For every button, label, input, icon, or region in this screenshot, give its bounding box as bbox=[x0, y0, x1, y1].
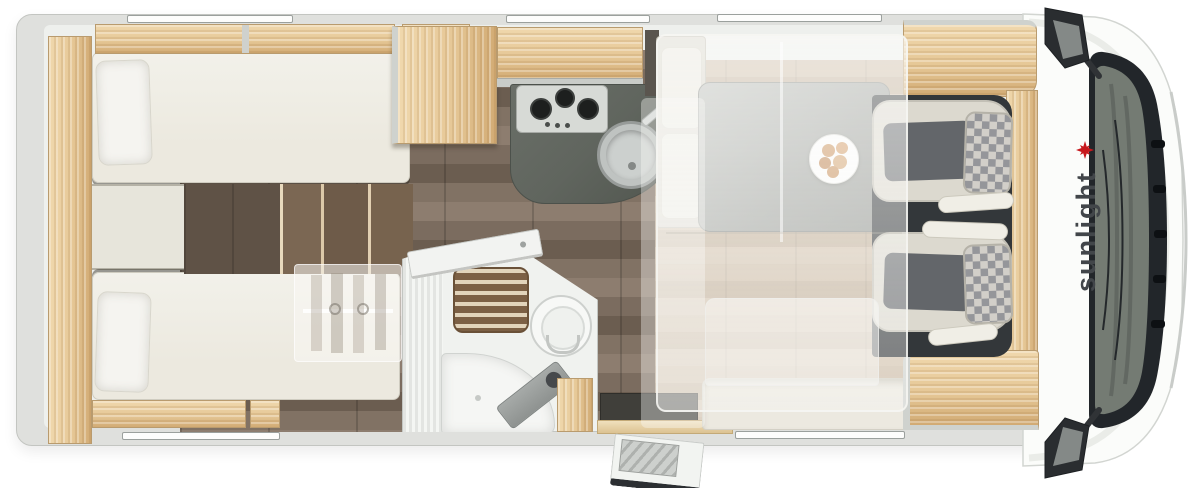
front-grille-slot bbox=[1153, 185, 1166, 193]
bathroom-cabinet bbox=[557, 378, 593, 432]
motorhome-floorplan: sunlight bbox=[0, 0, 1200, 488]
rear-bed-top-pillow bbox=[95, 59, 153, 166]
kitchen-upper-cabinet bbox=[497, 27, 643, 80]
roof-window bbox=[506, 15, 650, 23]
wardrobe-overlay bbox=[294, 264, 402, 362]
shower-grate bbox=[453, 267, 529, 333]
toilet bbox=[530, 295, 592, 357]
roof-window bbox=[735, 431, 905, 439]
sunlight-logo-text: sunlight bbox=[1071, 172, 1101, 292]
cab-frame-top bbox=[903, 20, 1037, 97]
front-grille-slot bbox=[1154, 230, 1167, 238]
sink-drain bbox=[628, 162, 636, 170]
burner bbox=[530, 98, 552, 120]
rear-bed-bottom-pillow bbox=[94, 291, 151, 393]
step bbox=[321, 184, 368, 274]
front-grille-slot bbox=[1151, 320, 1165, 328]
step bbox=[280, 184, 321, 274]
basin-drain bbox=[475, 395, 481, 401]
roof-window bbox=[717, 14, 882, 22]
seat-armrest bbox=[922, 221, 1009, 241]
door-handle-icon bbox=[520, 241, 527, 248]
toilet-seat-front bbox=[546, 335, 580, 354]
hob-knob bbox=[565, 123, 570, 128]
drop-down-bed-head-overlay bbox=[705, 298, 879, 386]
rear-bed-center-platform bbox=[92, 184, 184, 270]
bed-overlay-seam bbox=[666, 232, 902, 234]
front-grille-slot bbox=[1151, 140, 1165, 148]
front-grille-slot bbox=[1153, 275, 1166, 283]
hanging-clothes bbox=[375, 274, 386, 350]
hanger-hook bbox=[357, 303, 369, 315]
hob-knob bbox=[555, 123, 560, 128]
hanger-hook bbox=[329, 303, 341, 315]
burner bbox=[555, 88, 575, 108]
locker-divider bbox=[242, 25, 249, 53]
burner bbox=[577, 98, 599, 120]
rear-foot-bench-2 bbox=[250, 400, 280, 428]
seat-headrest-checker bbox=[963, 243, 1014, 325]
overhead-locker bbox=[95, 24, 395, 54]
bed-overlay-seam bbox=[780, 42, 783, 242]
roof-window bbox=[127, 15, 293, 23]
rear-foot-bench bbox=[92, 400, 246, 428]
cab-frame-bottom bbox=[903, 350, 1039, 430]
seat-headrest-checker bbox=[963, 111, 1014, 195]
hanging-clothes bbox=[311, 275, 322, 351]
gas-hob bbox=[516, 85, 608, 133]
shower-wall bbox=[403, 257, 443, 433]
hob-knob bbox=[545, 122, 550, 127]
tall-cabinet bbox=[392, 26, 497, 144]
rear-wall-panel bbox=[48, 36, 92, 444]
bed-steps-area bbox=[184, 184, 410, 274]
roof-window bbox=[122, 432, 280, 440]
entry-step bbox=[618, 439, 679, 477]
